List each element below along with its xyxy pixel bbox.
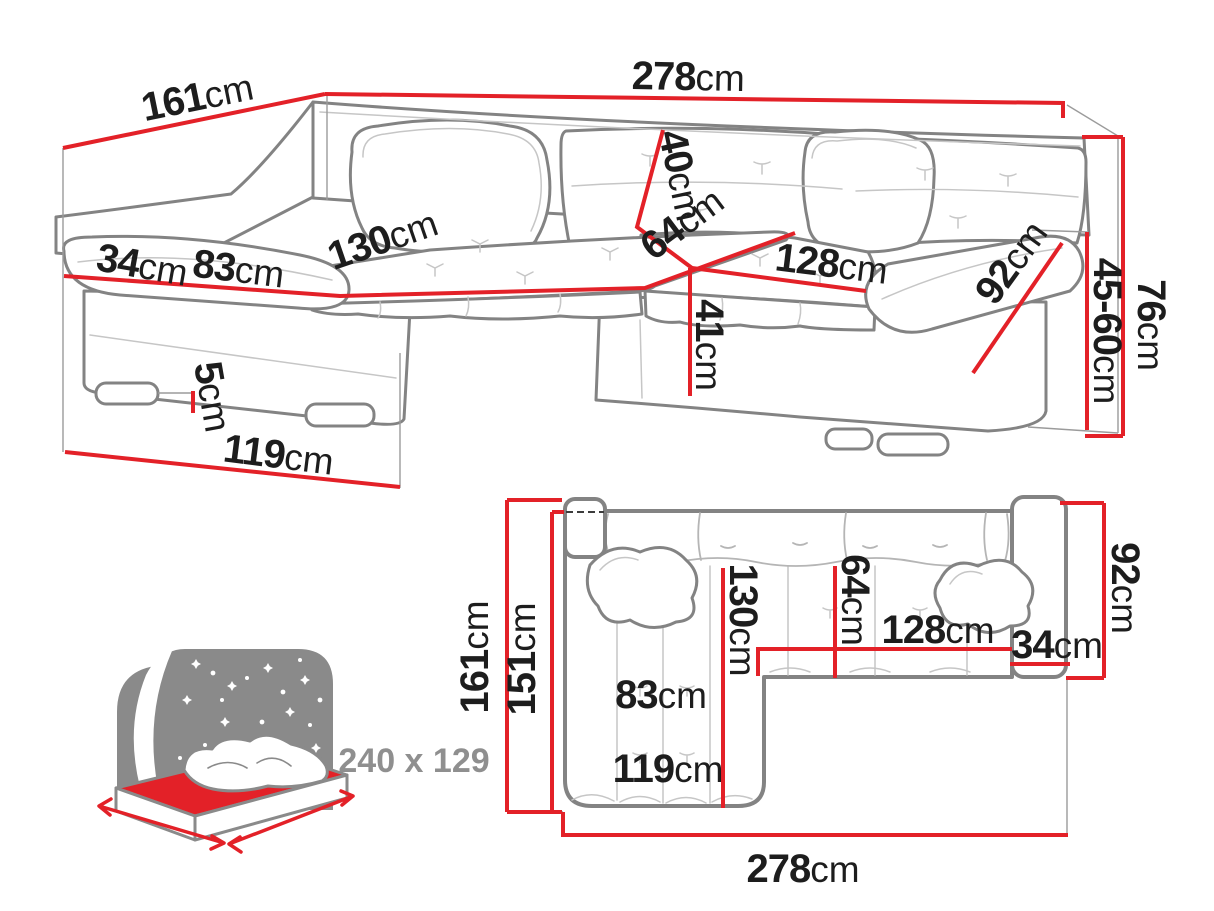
dim-label-plan-chaise-length: 130cm: [721, 563, 765, 676]
dim-label-plan-armrest-length: 92cm: [1103, 542, 1147, 634]
dim-label-width: 278cm: [631, 54, 745, 100]
dim-label-plan-bed-depth: 151cm: [500, 602, 544, 715]
dim-label-headrest-height: 45-60cm: [1085, 258, 1129, 405]
dim-label-plan-depth: 161cm: [453, 600, 497, 713]
plan-left-armrest: [565, 499, 605, 557]
dim-label-plan-chaise-width: 119cm: [613, 747, 724, 791]
dim-label-plan-seat-depth: 64cm: [833, 554, 877, 646]
plan-view: 161cm 151cm 130cm 64cm 128cm 34cm 92cm 8…: [453, 497, 1147, 891]
sofa-leg: [306, 404, 374, 426]
perspective-view: 161cm 278cm 40cm 64cm 128cm 92cm 76cm 45…: [56, 54, 1173, 488]
sleeping-size-label: 240 x 129: [338, 742, 489, 780]
sofa-dimensions-diagram: 161cm 278cm 40cm 64cm 128cm 92cm 76cm 45…: [0, 0, 1214, 911]
plan-pillow: [587, 548, 696, 628]
dim-label-plan-seat-width: 128cm: [881, 608, 994, 652]
dim-label-plan-chaise-seat-width: 83cm: [615, 673, 707, 717]
dim-line-plan-151: [552, 512, 564, 812]
sofa-leg: [826, 429, 872, 449]
dim-line-plan-278: [563, 812, 1068, 835]
dim-label-seat-height: 41cm: [687, 299, 731, 391]
dim-label-total-height: 76cm: [1129, 279, 1173, 371]
sofa-leg: [96, 383, 158, 404]
sofa-bed-icon: 240 x 129: [99, 649, 490, 852]
sofa-leg: [878, 434, 948, 455]
dim-label-plan-width: 278cm: [746, 847, 859, 891]
dim-label-plan-armrest-width: 34cm: [1011, 623, 1103, 667]
dim-label-chaise-width: 119cm: [221, 427, 336, 484]
